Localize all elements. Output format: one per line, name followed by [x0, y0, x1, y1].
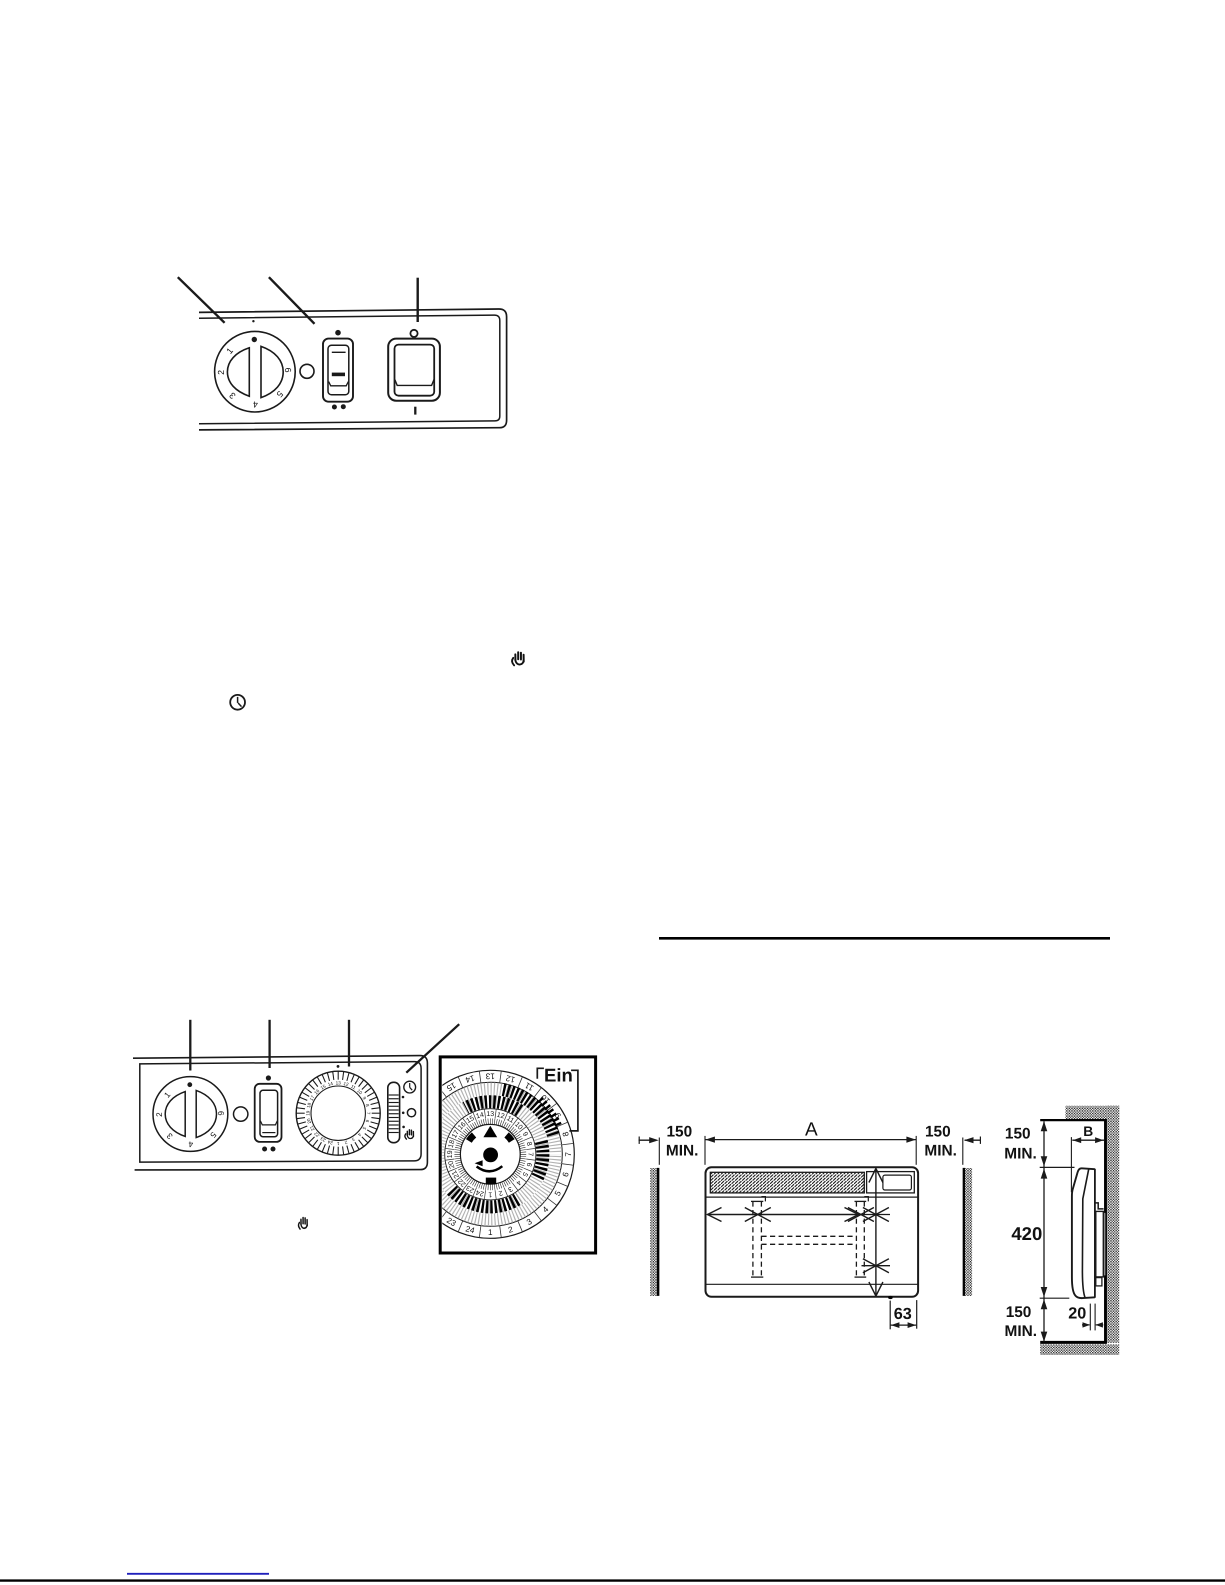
- svg-text:1: 1: [488, 1228, 493, 1237]
- svg-text:MIN.: MIN.: [666, 1143, 699, 1160]
- svg-text:63: 63: [894, 1305, 912, 1323]
- svg-text:Ein: Ein: [544, 1065, 573, 1086]
- svg-text:19: 19: [447, 1150, 454, 1158]
- svg-text:150: 150: [925, 1123, 951, 1140]
- svg-text:A: A: [805, 1120, 818, 1141]
- svg-text:13: 13: [486, 1111, 494, 1118]
- svg-text:19: 19: [306, 1110, 311, 1116]
- svg-text:7: 7: [564, 1152, 573, 1157]
- svg-text:MIN.: MIN.: [1004, 1146, 1037, 1163]
- svg-text:150: 150: [667, 1123, 693, 1140]
- svg-text:420: 420: [1011, 1223, 1042, 1244]
- svg-text:2: 2: [216, 370, 226, 375]
- svg-text:150: 150: [1006, 1304, 1032, 1321]
- svg-text:150: 150: [1005, 1125, 1031, 1142]
- svg-text:1: 1: [488, 1190, 492, 1197]
- svg-text:1: 1: [336, 1141, 339, 1146]
- svg-text:20: 20: [1068, 1305, 1086, 1323]
- svg-text:MIN.: MIN.: [924, 1143, 957, 1160]
- svg-text:B: B: [1083, 1124, 1093, 1139]
- svg-text:13: 13: [336, 1081, 342, 1086]
- svg-text:4: 4: [253, 400, 258, 410]
- svg-text:13: 13: [485, 1072, 495, 1081]
- svg-text:4: 4: [188, 1140, 193, 1149]
- svg-text:MIN.: MIN.: [1005, 1323, 1038, 1340]
- svg-text:7: 7: [526, 1152, 533, 1156]
- svg-text:7: 7: [366, 1112, 371, 1115]
- svg-text:6: 6: [283, 367, 293, 373]
- svg-text:2: 2: [155, 1112, 164, 1117]
